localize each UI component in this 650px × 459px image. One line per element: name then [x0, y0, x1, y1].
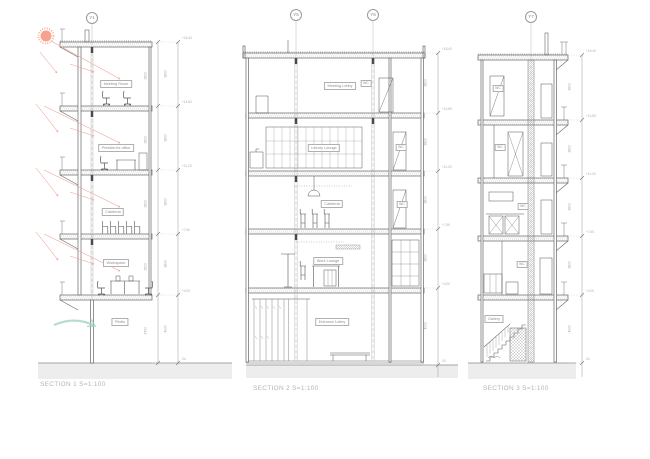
grid-bubble-y6: Y6 [367, 9, 379, 21]
room-label: Gallery [484, 315, 503, 323]
dim-text: 3600 [424, 133, 427, 151]
level-text: +18.40 [586, 50, 596, 53]
room-label: Entrance Lobby [315, 318, 349, 326]
room-label: Cafeteria [321, 200, 343, 208]
dim-text: 3700 [144, 322, 147, 340]
ground-hatch [38, 363, 576, 379]
wc-label: WC [518, 203, 529, 210]
section-caption: SECTION 3 S=1:100 [483, 385, 549, 392]
level-text: +18.40 [442, 48, 452, 51]
wc-label: WC [495, 144, 506, 151]
level-text: +7.60 [586, 231, 594, 234]
level-text: +14.80 [442, 108, 452, 111]
dim-text: 3600 [424, 249, 427, 267]
room-label: Library Lounge [308, 144, 340, 152]
dim-text: 3600 [164, 255, 167, 273]
dim-text: 3600 [164, 129, 167, 147]
dim-text: 2500 [144, 258, 147, 276]
dim-text: 3600 [424, 74, 427, 92]
level-text: +18.40 [182, 37, 192, 40]
room-label: Pilotis [111, 318, 128, 326]
level-text: +7.60 [442, 224, 450, 227]
dim-text: 3600 [164, 193, 167, 211]
section-drawing-sheet: Y1 Y5 Y6 Y7 Meeting Room President's off… [0, 0, 650, 459]
dim-text: 3600 [568, 198, 571, 216]
dim-text: 3600 [568, 78, 571, 96]
room-label: Workspace [103, 259, 129, 267]
dim-text: 3600 [568, 256, 571, 274]
dim-text: 4000 [568, 320, 571, 338]
grid-bubble-y1: Y1 [86, 12, 98, 24]
dim-text: 2500 [144, 131, 147, 149]
wc-label: WC [493, 85, 504, 92]
wc-label: WC [361, 80, 372, 87]
dim-text: 2500 [144, 67, 147, 85]
dim-text: 4000 [424, 317, 427, 335]
wc-label: WC [397, 201, 408, 208]
dim-text: 3600 [568, 140, 571, 158]
room-label: Cafeteria [102, 208, 124, 216]
level-text: +14.80 [586, 115, 596, 118]
section-caption: SECTION 1 S=1:100 [40, 381, 106, 388]
level-text: +4.00 [182, 290, 190, 293]
level-text: +11.20 [182, 165, 192, 168]
room-label: Meeting Lobby [324, 82, 356, 90]
section-caption: SECTION 2 S=1:100 [253, 385, 319, 392]
dim-text: 2500 [144, 195, 147, 213]
level-text: GL [182, 358, 186, 361]
grid-bubble-y7: Y7 [525, 11, 537, 23]
level-text: +4.00 [586, 290, 594, 293]
level-text: +11.20 [586, 173, 596, 176]
level-text: +7.60 [182, 229, 190, 232]
breeze-arrow-icon [54, 321, 95, 326]
room-label: President's office [98, 144, 134, 152]
level-text: +14.80 [182, 101, 192, 104]
grid-bubble-y5: Y5 [290, 9, 302, 21]
section-3-linework [478, 33, 568, 362]
wc-label: WC [517, 261, 528, 268]
room-label: Meeting Room [100, 80, 132, 88]
drawing-linework [0, 0, 650, 459]
dim-text: 3600 [164, 65, 167, 83]
level-text: +11.20 [442, 166, 452, 169]
dim-text: 3600 [424, 191, 427, 209]
wc-label: WC [396, 144, 407, 151]
level-text: +4.00 [442, 283, 450, 286]
level-text: GL [442, 360, 446, 363]
dim-text: 4000 [164, 320, 167, 338]
level-text: GL [586, 358, 590, 361]
room-label: Work Lounge [313, 257, 343, 265]
